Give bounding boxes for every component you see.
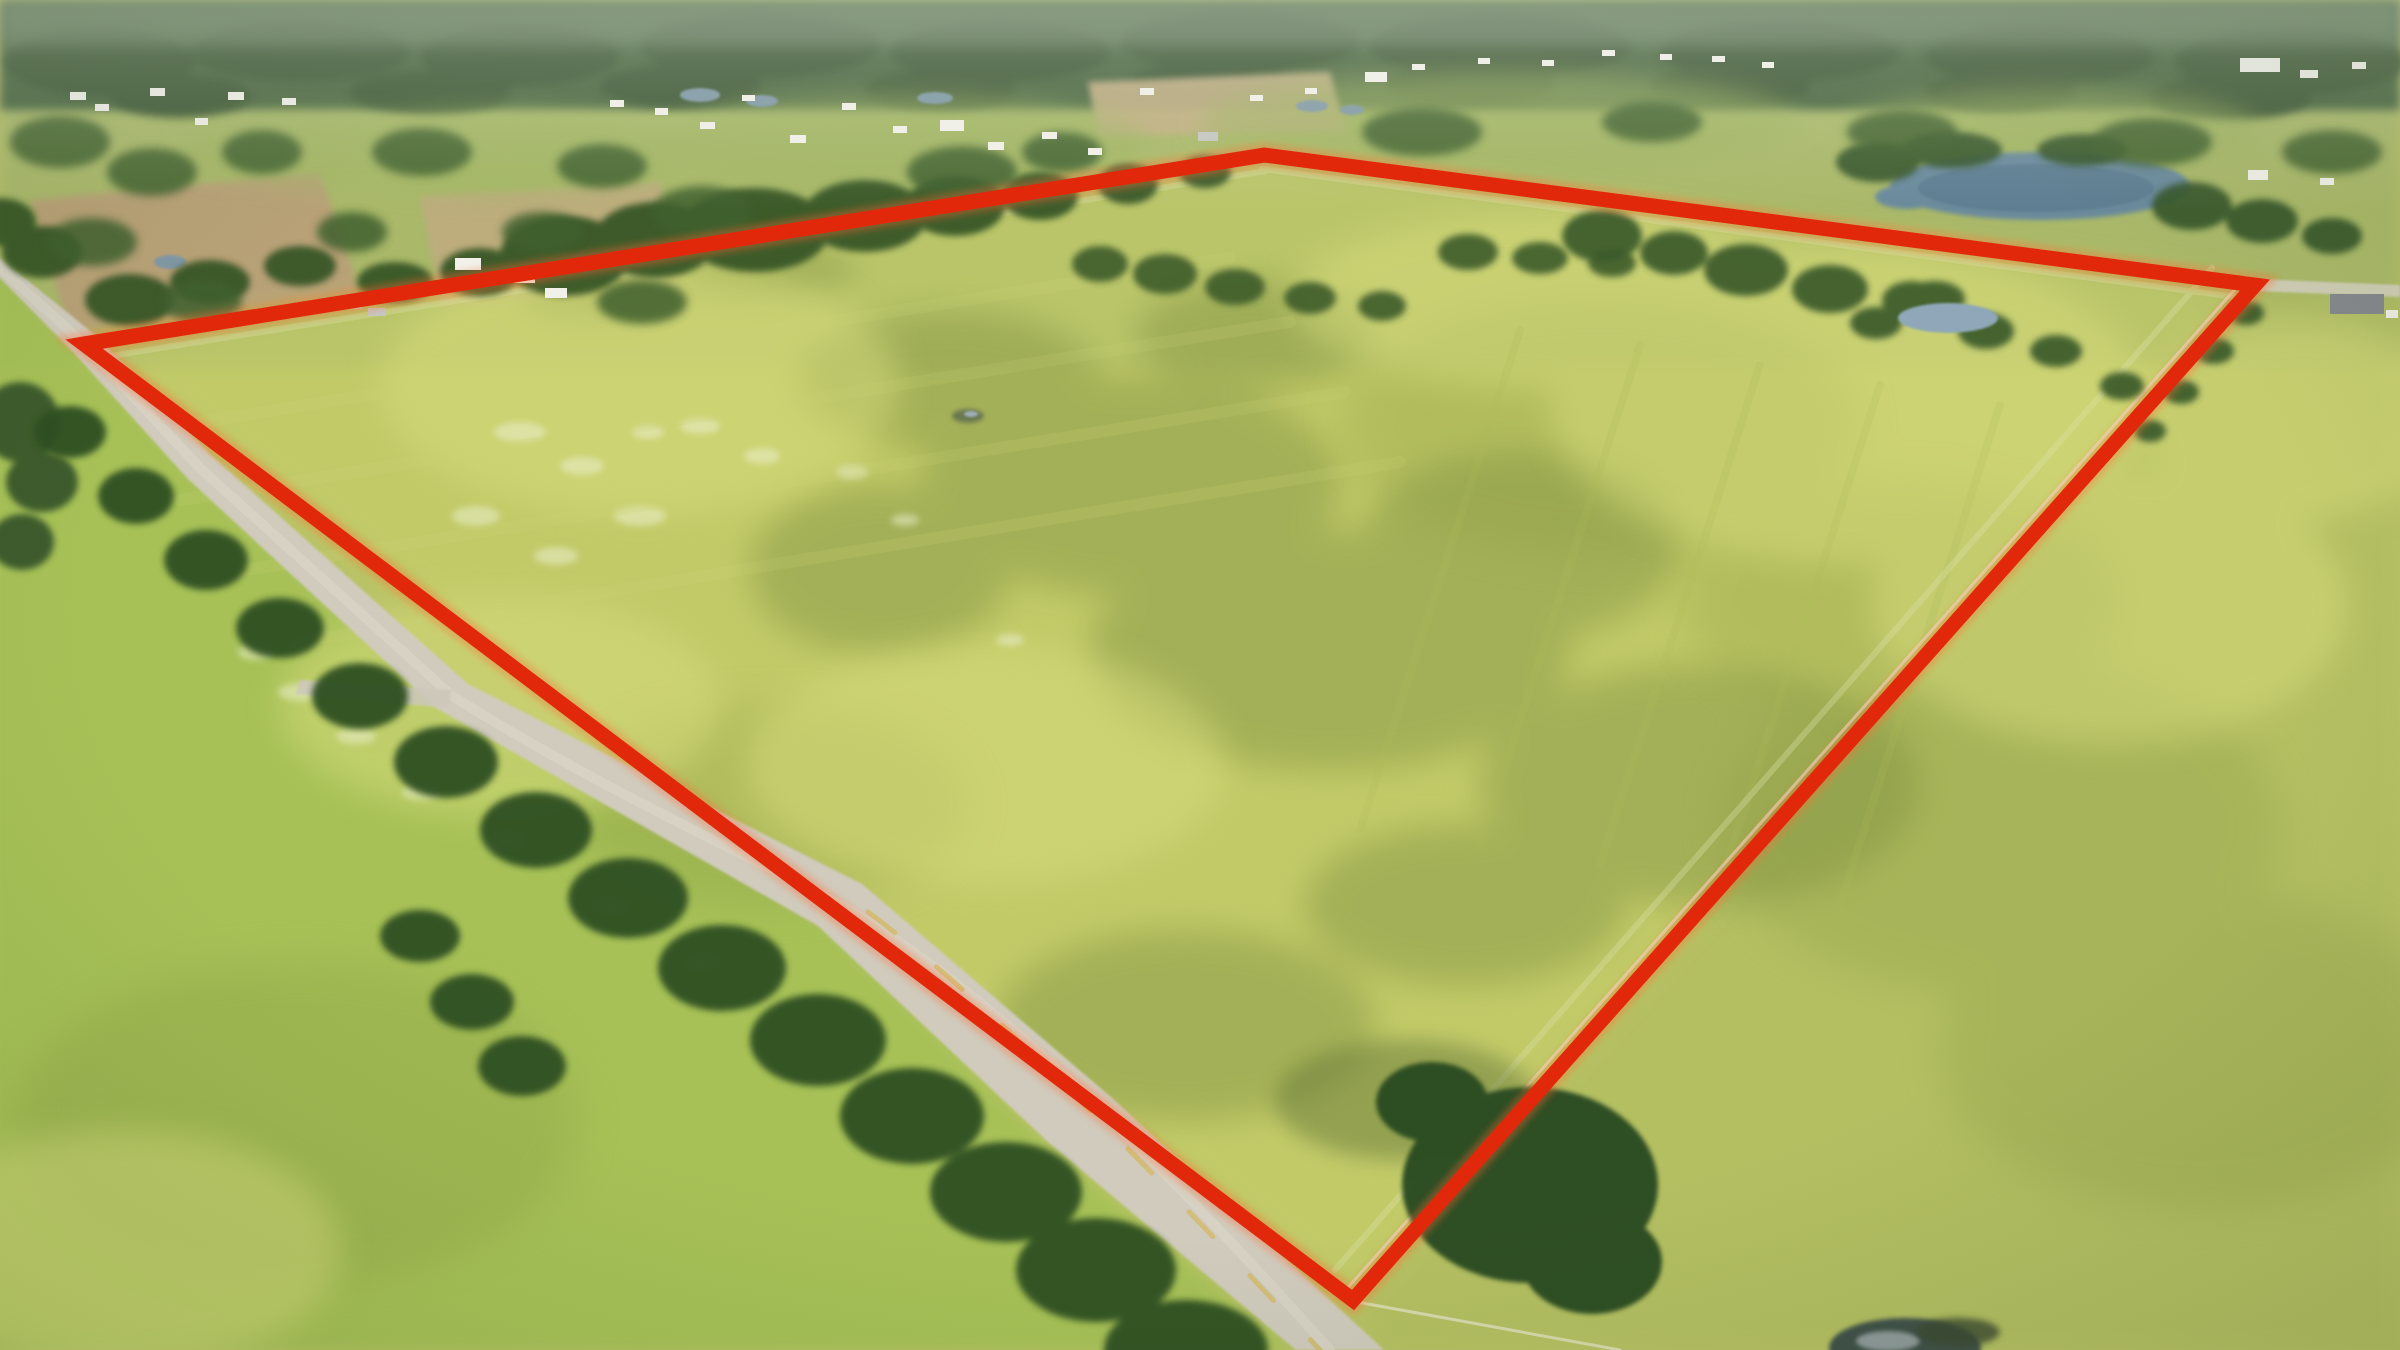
aerial-photo-stage — [0, 0, 2400, 1350]
vignette — [0, 0, 2400, 1350]
aerial-photo — [0, 0, 2400, 1350]
